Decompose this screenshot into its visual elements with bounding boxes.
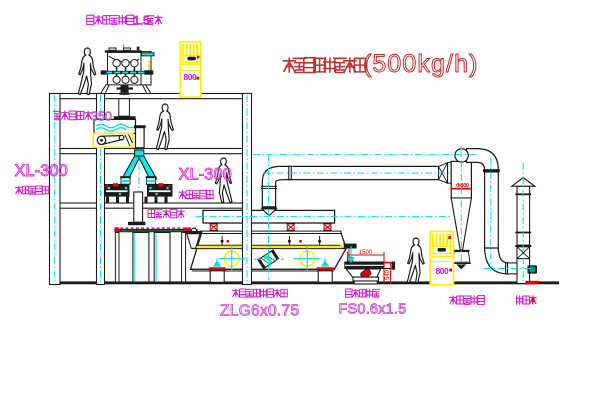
svg-text:XL-300: XL-300: [179, 166, 232, 184]
svg-text:540: 540: [385, 269, 391, 280]
svg-text:800: 800: [436, 266, 449, 276]
svg-text:XL-300: XL-300: [15, 162, 68, 180]
svg-text:ZLG6x0.75: ZLG6x0.75: [220, 303, 299, 320]
svg-text:800: 800: [184, 72, 197, 82]
svg-text:(500kg/h): (500kg/h): [363, 50, 479, 78]
svg-text:FS0.6x1.5: FS0.6x1.5: [339, 301, 407, 317]
svg-text:350: 350: [91, 109, 112, 123]
svg-text:1500: 1500: [359, 250, 373, 256]
svg-text:1.5: 1.5: [134, 16, 150, 28]
